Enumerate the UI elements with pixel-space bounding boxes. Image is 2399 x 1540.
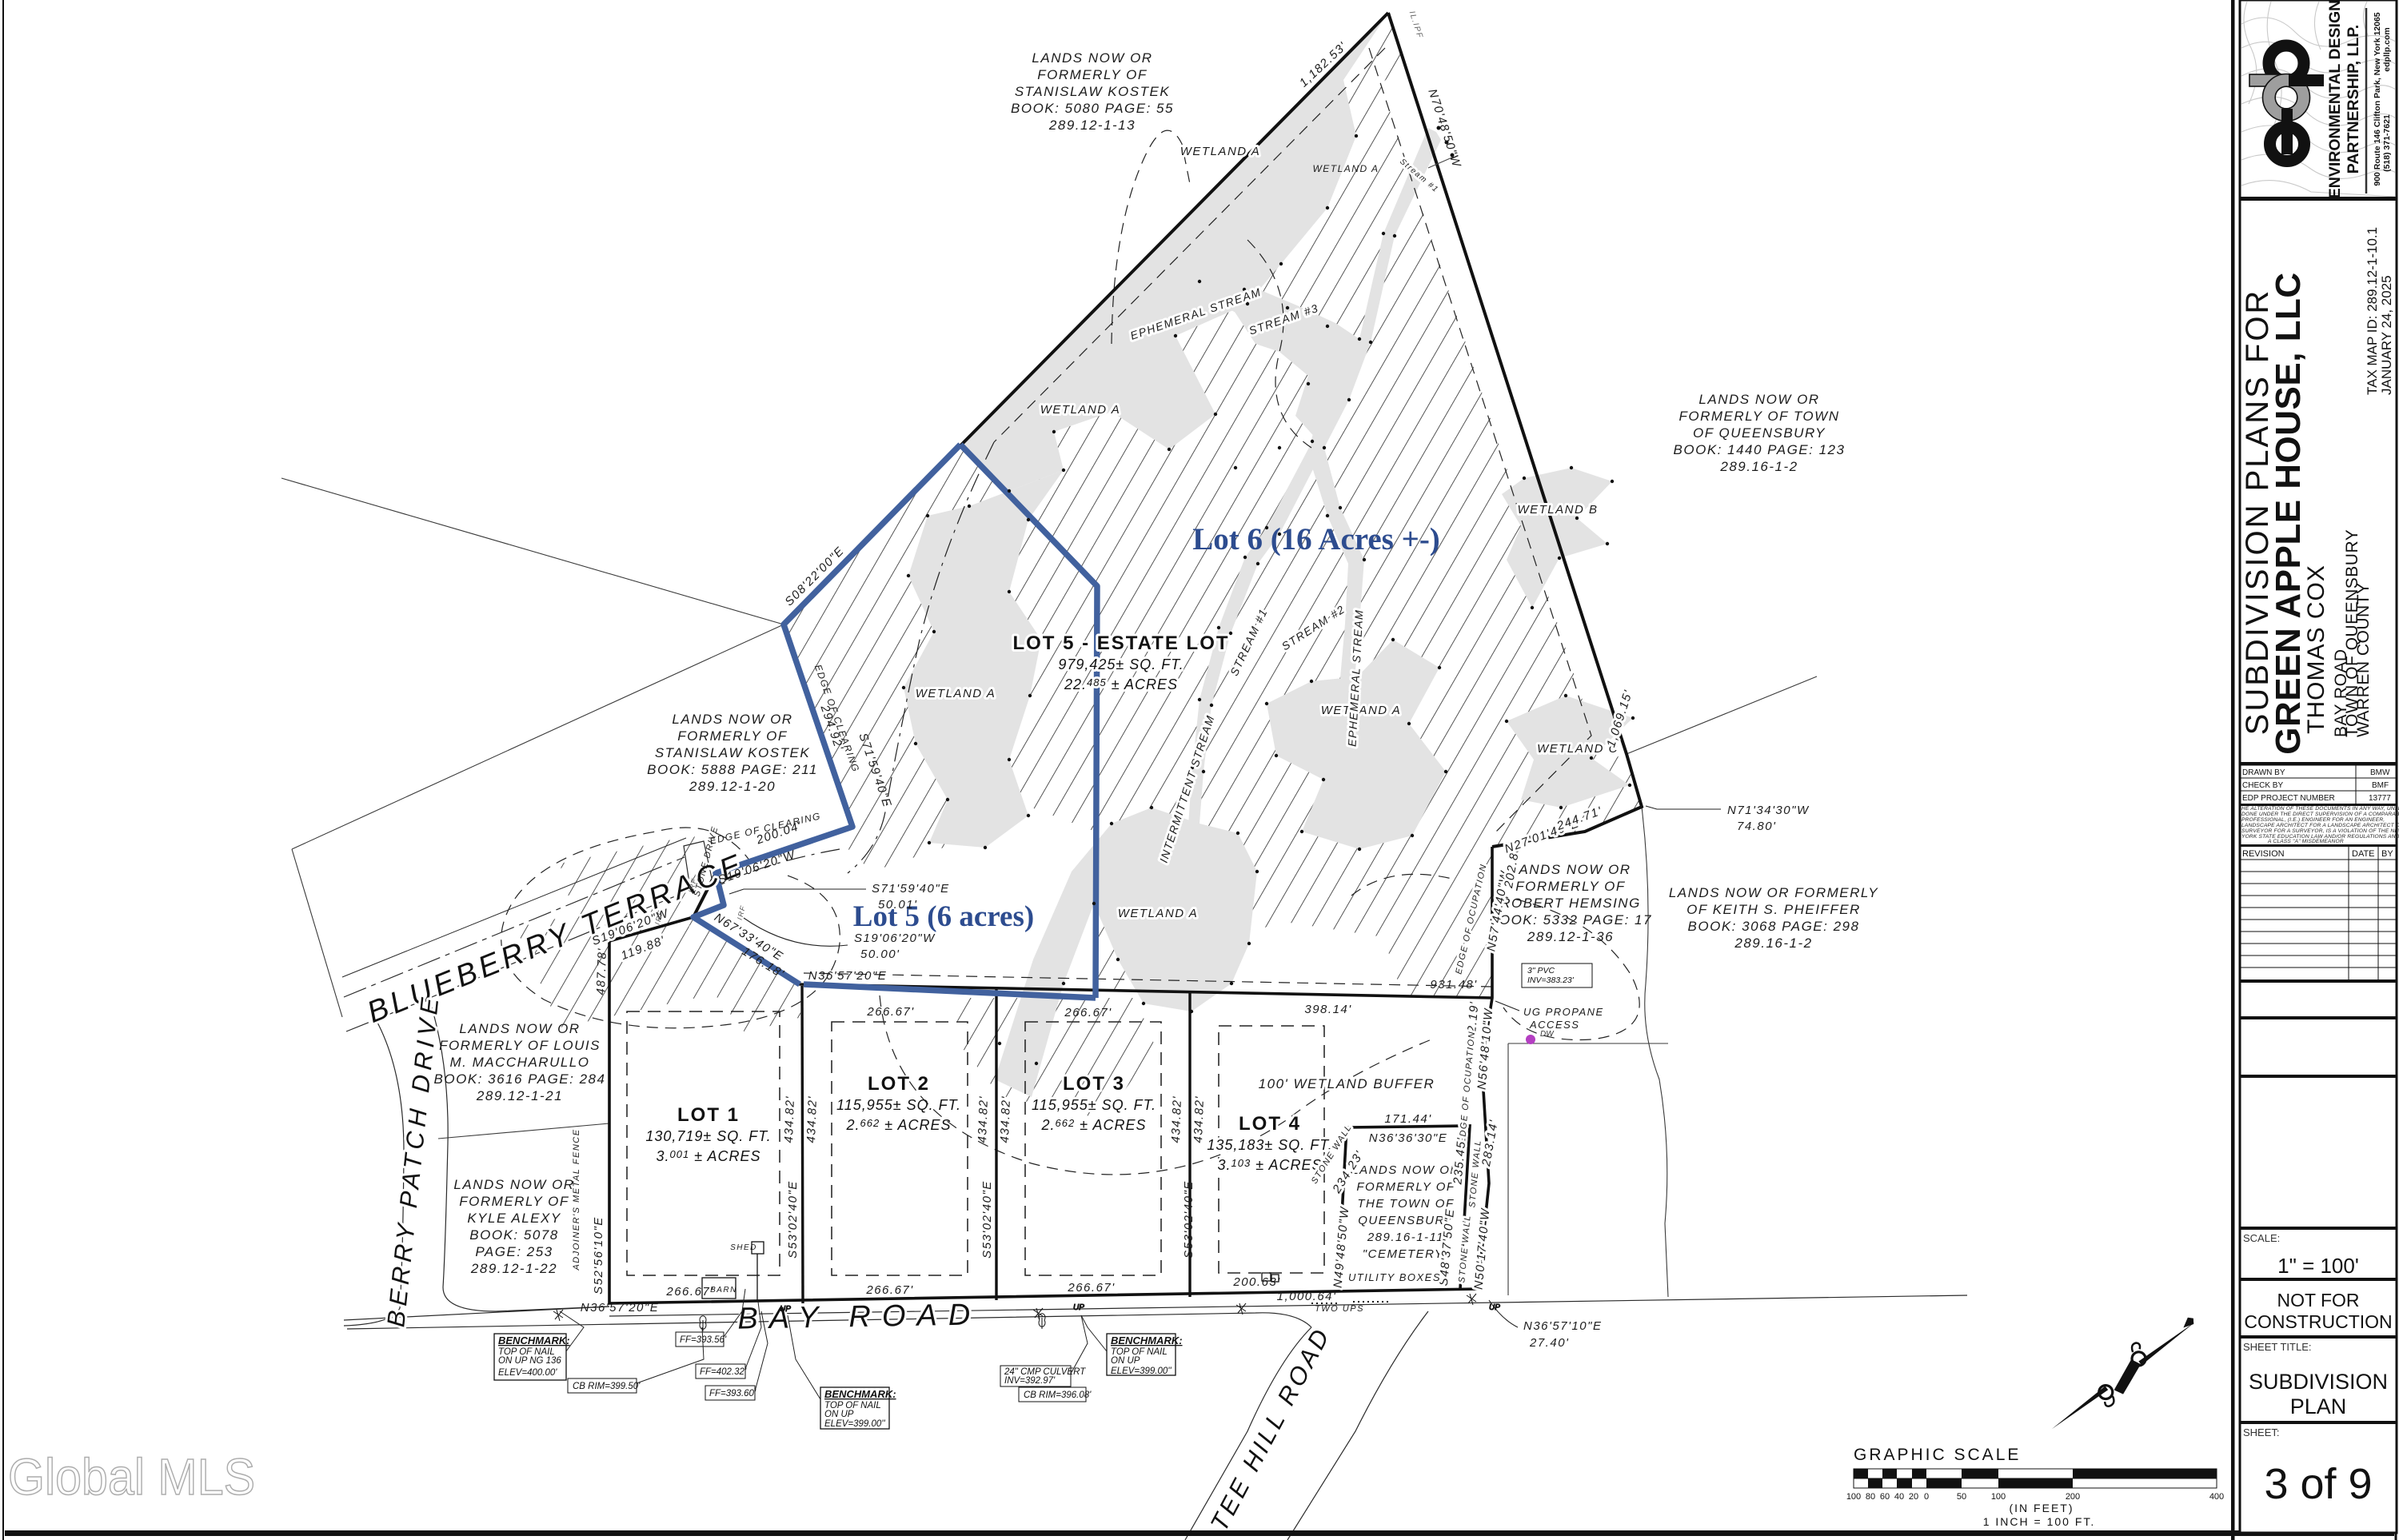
svg-text:ON UP NG 136: ON UP NG 136 [498,1356,561,1366]
svg-text:INV=383.23': INV=383.23' [1527,975,1575,985]
svg-text:BMW: BMW [2370,768,2390,777]
svg-text:BARN: BARN [710,1286,737,1295]
svg-text:BOOK: 5332 PAGE: 17: BOOK: 5332 PAGE: 17 [1489,912,1652,928]
svg-text:115,955± SQ. FT.: 115,955± SQ. FT. [836,1097,961,1113]
svg-text:BENCHMARK:: BENCHMARK: [824,1388,896,1400]
svg-text:UP: UP [1489,1303,1500,1312]
svg-text:900 Route 146 Clifton Park, Ne: 900 Route 146 Clifton Park, New York 120… [2373,12,2382,186]
svg-text:80: 80 [1866,1492,1875,1502]
svg-text:PARTNERSHIP, LLP.: PARTNERSHIP, LLP. [2345,25,2362,174]
svg-text:487.78': 487.78' [594,948,609,995]
svg-text:LANDS NOW OR: LANDS NOW OR [1351,1163,1460,1177]
svg-text:N36'36'30"E: N36'36'30"E [1369,1131,1447,1145]
svg-text:60: 60 [1880,1492,1890,1502]
svg-text:N71'34'30"W: N71'34'30"W [1727,804,1810,817]
svg-text:266.67': 266.67' [865,1283,913,1297]
svg-text:BY: BY [2381,849,2393,859]
svg-text:FORMERLY OF: FORMERLY OF [1037,67,1148,82]
svg-text:40: 40 [1894,1492,1904,1502]
svg-text:LANDS NOW OR: LANDS NOW OR [1510,862,1631,877]
svg-text:HE ALTERATION OF THESE DOC: HE ALTERATION OF THESE DOCUMENTS IN ANY … [2241,806,2399,812]
svg-text:BOOK: 5078: BOOK: 5078 [469,1227,558,1243]
svg-text:STANISLAW KOSTEK: STANISLAW KOSTEK [655,745,810,760]
svg-text:M. MACCHARULLO: M. MACCHARULLO [450,1055,590,1070]
svg-text:PLAN: PLAN [2290,1394,2347,1418]
svg-text:434.82': 434.82' [998,1095,1013,1143]
svg-text:SHED: SHED [730,1243,757,1252]
svg-text:N36'57'20"E: N36'57'20"E [808,969,887,983]
svg-text:SCALE:: SCALE: [2243,1232,2280,1244]
svg-text:S71'59'40"E: S71'59'40"E [872,882,950,896]
svg-text:FORMERLY OF: FORMERLY OF [459,1194,569,1209]
svg-text:931.48': 931.48' [1430,978,1477,991]
svg-text:JANUARY 24, 2025: JANUARY 24, 2025 [2379,275,2394,395]
svg-text:DONE UNDER THE DIRECT SUPE: DONE UNDER THE DIRECT SUPERVISION OF A C… [2241,812,2399,817]
svg-text:ON UP: ON UP [1111,1356,1140,1366]
svg-text:171.44': 171.44' [1384,1112,1431,1126]
svg-text:434.82': 434.82' [1192,1095,1207,1143]
svg-text:CONSTRUCTION: CONSTRUCTION [2244,1311,2392,1332]
svg-text:13777: 13777 [2369,794,2391,803]
svg-text:266.67': 266.67' [866,1005,914,1019]
svg-text:434.82': 434.82' [804,1095,820,1143]
svg-text:WARREN COUNTY: WARREN COUNTY [2354,582,2373,737]
svg-text:S53'02'40"E: S53'02'40"E [1182,1180,1196,1259]
svg-text:3" PVC: 3" PVC [1527,966,1555,975]
svg-text:BENCHMARK:: BENCHMARK: [1111,1335,1183,1347]
svg-text:DRAWN BY: DRAWN BY [2242,768,2285,777]
svg-text:EDP PROJECT NUMBER: EDP PROJECT NUMBER [2242,794,2335,803]
svg-text:GRAPHIC SCALE: GRAPHIC SCALE [1854,1446,2021,1464]
svg-text:ROBERT HEMSING: ROBERT HEMSING [1500,896,1641,911]
svg-text:CB RIM=399.50': CB RIM=399.50' [573,1382,641,1391]
svg-text:434.82': 434.82' [976,1095,991,1143]
svg-text:WETLAND B: WETLAND B [1517,503,1598,517]
svg-text:50.01': 50.01' [878,898,917,912]
svg-text:74.80': 74.80' [1737,820,1776,833]
svg-text:LOT 2: LOT 2 [868,1073,930,1095]
svg-text:1 INCH = 100 FT.: 1 INCH = 100 FT. [1983,1515,2096,1528]
svg-text:BOOK: 5888 PAGE: 211: BOOK: 5888 PAGE: 211 [647,762,818,777]
svg-text:S53'02'40"E: S53'02'40"E [786,1180,800,1259]
svg-text:ADJOINER'S METAL FENCE: ADJOINER'S METAL FENCE [572,1128,581,1271]
svg-text:LANDS NOW OR: LANDS NOW OR [453,1177,574,1192]
svg-text:THE TOWN OF: THE TOWN OF [1357,1197,1454,1211]
svg-text:1,000.64': 1,000.64' [1277,1290,1337,1303]
svg-text:BOOK: 3616 PAGE: 284: BOOK: 3616 PAGE: 284 [434,1071,606,1087]
svg-text:BOOK: 1440 PAGE: 123: BOOK: 1440 PAGE: 123 [1674,442,1846,457]
svg-text:INV=392.97': INV=392.97' [1004,1376,1056,1386]
svg-text:OF KEITH S. PHEIFFER: OF KEITH S. PHEIFFER [1686,902,1861,917]
svg-text:1" = 100': 1" = 100' [2277,1254,2359,1278]
svg-text:KYLE ALEXY: KYLE ALEXY [467,1211,561,1226]
svg-text:289.16-1-11: 289.16-1-11 [1367,1231,1444,1244]
svg-text:N36'57'10"E: N36'57'10"E [1523,1319,1602,1333]
svg-text:WETLAND A: WETLAND A [1180,145,1260,158]
svg-text:FORMERLY OF: FORMERLY OF [1356,1180,1455,1194]
svg-text:400: 400 [2209,1492,2224,1502]
svg-text:289.12-1-13: 289.12-1-13 [1048,118,1136,133]
svg-text:266.67': 266.67' [1067,1281,1115,1295]
svg-text:LANDS NOW OR: LANDS NOW OR [459,1021,580,1036]
svg-text:(518) 371-7621: (518) 371-7621 [2382,114,2392,172]
svg-text:SUBDIVISION: SUBDIVISION [2249,1370,2388,1394]
svg-text:WETLAND A: WETLAND A [1118,907,1198,920]
svg-text:S19'06'20"W: S19'06'20"W [854,932,936,945]
svg-text:266.67': 266.67' [665,1285,713,1299]
svg-text:ELEV=400.00': ELEV=400.00' [498,1368,557,1378]
svg-text:289.12-1-20: 289.12-1-20 [689,779,776,794]
svg-text:22.485 ± ACRES: 22.485 ± ACRES [1064,676,1178,692]
svg-text:FORMERLY OF TOWN: FORMERLY OF TOWN [1679,409,1840,424]
svg-text:BOOK: 3068 PAGE: 298: BOOK: 3068 PAGE: 298 [1688,919,1860,934]
svg-text:S53'02'40"E: S53'02'40"E [980,1180,994,1259]
svg-text:(IN FEET): (IN FEET) [2010,1502,2074,1514]
svg-text:27.40': 27.40' [1529,1336,1569,1350]
svg-text:STANISLAW KOSTEK: STANISLAW KOSTEK [1015,84,1170,99]
svg-text:434.82': 434.82' [1169,1095,1184,1143]
svg-text:FF=393.60': FF=393.60' [709,1389,756,1398]
svg-text:3 of 9: 3 of 9 [2264,1460,2372,1508]
svg-text:WETLAND A: WETLAND A [916,687,996,700]
svg-text:Global MLS: Global MLS [8,1449,255,1506]
svg-text:289.12-1-21: 289.12-1-21 [476,1088,563,1103]
svg-text:100' WETLAND BUFFER: 100' WETLAND BUFFER [1259,1076,1435,1091]
svg-text:289.12-1-22: 289.12-1-22 [470,1261,557,1276]
svg-text:QUEENSBURY: QUEENSBURY [1358,1214,1453,1227]
svg-text:979,425± SQ. FT.: 979,425± SQ. FT. [1058,656,1184,672]
svg-text:ENVIRONMENTAL DESIGN: ENVIRONMENTAL DESIGN [2326,0,2344,198]
svg-text:LANDSCAPE ARCHITECT FOR A: LANDSCAPE ARCHITECT FOR A LANDSCAPE ARCH… [2241,823,2399,828]
svg-text:20: 20 [1909,1492,1918,1502]
svg-text:BAY ROAD: BAY ROAD [737,1298,982,1335]
svg-text:PAGE: 253: PAGE: 253 [475,1244,553,1259]
svg-text:"CEMETERY": "CEMETERY" [1363,1247,1449,1261]
svg-text:ELEV=399.00'': ELEV=399.00'' [1111,1366,1172,1376]
svg-text:SHEET:: SHEET: [2243,1426,2280,1438]
svg-text:266.67': 266.67' [1064,1006,1112,1019]
svg-text:N36'57'20"E: N36'57'20"E [581,1301,659,1315]
svg-text:0: 0 [1924,1492,1929,1502]
svg-text:REVISION: REVISION [2242,849,2285,859]
svg-text:100: 100 [1991,1492,2006,1502]
svg-text:115,955± SQ. FT.: 115,955± SQ. FT. [1032,1097,1156,1113]
svg-text:CB RIM=396.08': CB RIM=396.08' [1024,1390,1092,1400]
svg-text:WETLAND A: WETLAND A [1312,163,1379,174]
svg-text:UTILITY BOXES: UTILITY BOXES [1348,1271,1441,1283]
svg-text:BOOK: 5080 PAGE: 55: BOOK: 5080 PAGE: 55 [1011,101,1174,116]
svg-text:CHECK BY: CHECK BY [2242,781,2283,790]
svg-text:289.16-1-2: 289.16-1-2 [1719,459,1798,474]
svg-text:289.16-1-2: 289.16-1-2 [1734,936,1812,951]
svg-text:DATE: DATE [2352,849,2375,859]
svg-text:OF QUEENSBURY: OF QUEENSBURY [1693,425,1826,441]
svg-text:FORMERLY OF: FORMERLY OF [677,728,788,744]
svg-text:135,183± SQ. FT.: 135,183± SQ. FT. [1207,1137,1332,1153]
svg-text:LANDS NOW OR FORMERLY: LANDS NOW OR FORMERLY [1669,885,1878,900]
svg-text:FORMERLY OF LOUIS: FORMERLY OF LOUIS [439,1038,601,1053]
svg-text:A CLASS "A" MISDEMEANOR: A CLASS "A" MISDEMEANOR [2267,839,2344,844]
svg-text:ACCESS: ACCESS [1529,1019,1579,1031]
svg-text:LOT 3: LOT 3 [1063,1073,1125,1095]
svg-text:ELEV=399.00'': ELEV=399.00'' [824,1419,885,1429]
svg-text:S52'56'10"E: S52'56'10"E [592,1216,605,1295]
svg-text:LANDS NOW OR: LANDS NOW OR [1032,50,1152,66]
svg-text:LOT 4: LOT 4 [1239,1113,1301,1135]
svg-text:LANDS NOW OR: LANDS NOW OR [1698,392,1819,407]
svg-text:LOT 5 - ESTATE LOT: LOT 5 - ESTATE LOT [1012,632,1229,654]
svg-text:SHEET TITLE:: SHEET TITLE: [2243,1341,2312,1353]
svg-text:LOT 1: LOT 1 [677,1104,740,1126]
svg-text:NOT FOR: NOT FOR [2277,1290,2359,1311]
svg-text:TAX MAP ID: 289.12-1-10.1: TAX MAP ID: 289.12-1-10.1 [2365,227,2380,395]
svg-text:LANDS NOW OR: LANDS NOW OR [672,712,792,727]
svg-text:UP: UP [780,1305,791,1314]
svg-text:50.00': 50.00' [860,948,900,961]
svg-text:FORMERLY OF: FORMERLY OF [1515,879,1626,894]
svg-text:UP: UP [1073,1303,1084,1312]
svg-text:130,719± SQ. FT.: 130,719± SQ. FT. [645,1128,771,1144]
svg-text:434.82': 434.82' [782,1095,797,1143]
svg-text:TWO UPS: TWO UPS [1315,1304,1364,1314]
svg-text:PROFESSIONAL, (I.E.) ENGIN: PROFESSIONAL, (I.E.) ENGINEER FOR AN ENG… [2241,817,2385,823]
svg-text:289.12-1-36: 289.12-1-36 [1527,929,1614,944]
svg-text:100: 100 [1846,1492,1861,1502]
svg-text:BMF: BMF [2372,781,2389,790]
svg-text:WETLAND A: WETLAND A [1321,704,1401,717]
svg-text:DW: DW [1540,1030,1555,1039]
svg-text:398.14': 398.14' [1304,1003,1351,1016]
svg-text:WETLAND A: WETLAND A [1040,403,1120,417]
svg-text:SURVEYOR FOR A SURVEYOR, I: SURVEYOR FOR A SURVEYOR, IS A VIOLATION … [2241,828,2399,834]
svg-text:GREEN APPLE HOUSE, LLC: GREEN APPLE HOUSE, LLC [2269,272,2308,754]
svg-text:Lot 6 (16 Acres +-): Lot 6 (16 Acres +-) [1192,522,1440,557]
svg-text:FF=402.32': FF=402.32' [700,1367,747,1377]
svg-text:UG PROPANE: UG PROPANE [1523,1006,1604,1018]
svg-text:200: 200 [2066,1492,2080,1502]
svg-text:edpllp.com: edpllp.com [2382,27,2392,71]
svg-text:THOMAS COX: THOMAS COX [2303,565,2329,734]
svg-text:50: 50 [1957,1492,1966,1502]
svg-text:BENCHMARK:: BENCHMARK: [498,1335,570,1347]
svg-text:ON UP: ON UP [824,1410,854,1419]
